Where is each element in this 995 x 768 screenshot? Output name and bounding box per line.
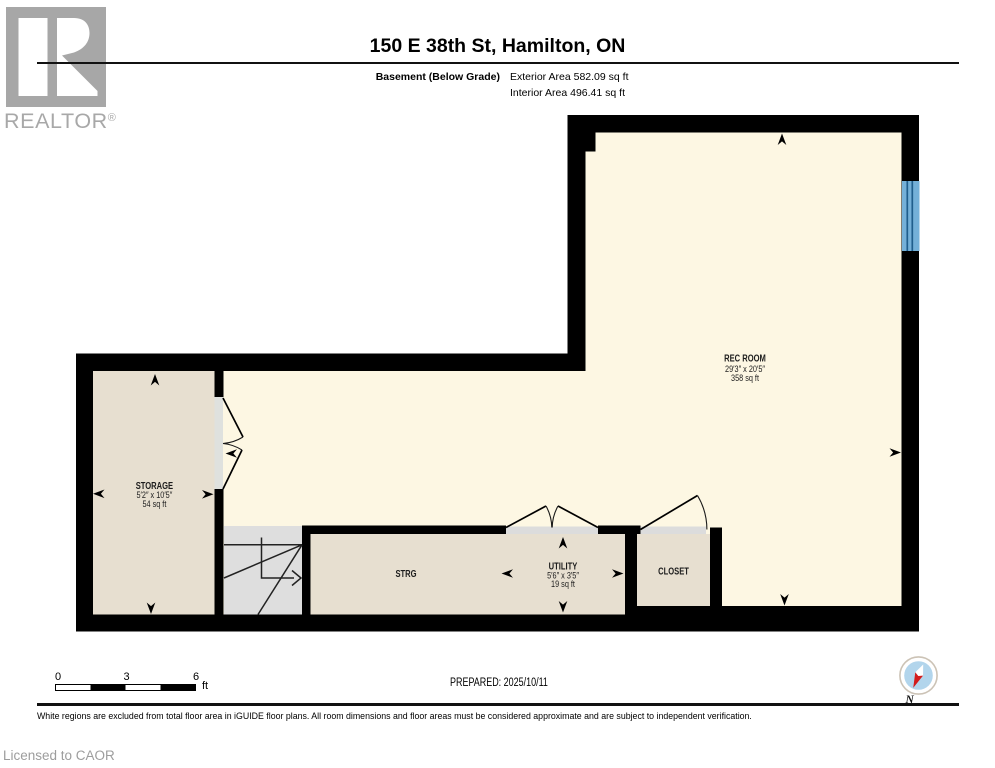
svg-text:358 sq ft: 358 sq ft <box>731 372 759 383</box>
svg-text:CLOSET: CLOSET <box>658 565 689 576</box>
svg-text:19 sq ft: 19 sq ft <box>551 578 575 589</box>
svg-text:54 sq ft: 54 sq ft <box>142 498 166 509</box>
svg-text:STRG: STRG <box>395 568 416 579</box>
